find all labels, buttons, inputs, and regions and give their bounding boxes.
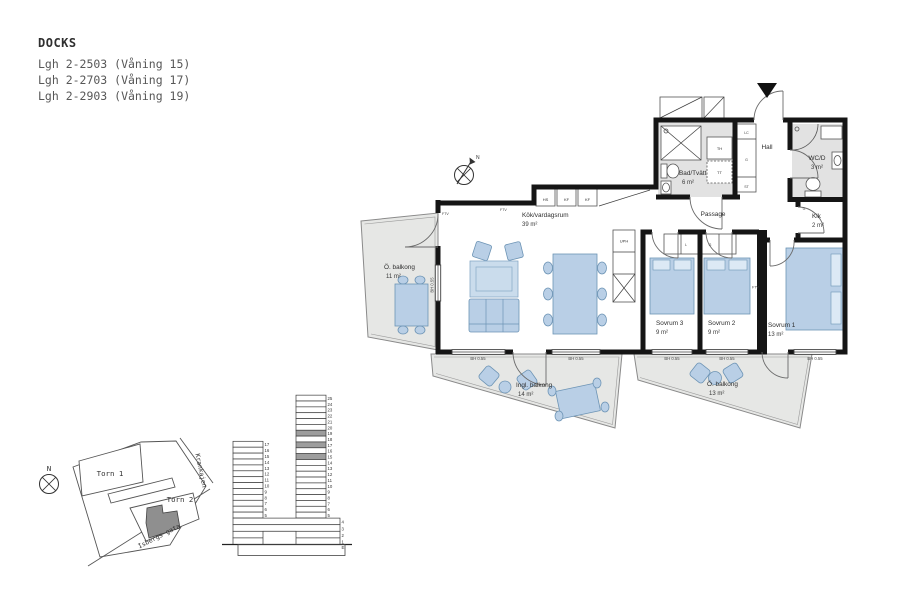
cabinet-label-kf: KF (585, 197, 591, 202)
floor-row-13 (296, 465, 326, 471)
window-height-label: BH 0.55 (470, 356, 486, 361)
shaft-boxes (660, 97, 724, 118)
floor-row-21 (296, 419, 326, 425)
room-area-sovrum1: 13 m² (768, 332, 783, 338)
floor-label-10: 10 (328, 484, 333, 489)
floor-label-17: 17 (265, 442, 270, 447)
floor-row-24 (296, 401, 326, 407)
floor-label-18: 18 (328, 437, 333, 442)
floor-label-17: 17 (328, 443, 333, 448)
room-label-sovrum3: Sovrum 3 (656, 320, 684, 327)
floor-row-25 (296, 395, 326, 401)
window (706, 350, 748, 355)
window-height-label: BH 0.55 (664, 356, 680, 361)
room-label-passage: Passage (701, 211, 726, 218)
balcony-table (395, 284, 428, 326)
dining-table-group (544, 254, 607, 334)
ftv-label: FTV (442, 212, 449, 216)
ftv-label: FTV (500, 208, 507, 212)
site-north-label: N (47, 464, 51, 473)
floor-row-8 (233, 494, 263, 500)
room-label-sovrum2: Sovrum 2 (708, 320, 736, 327)
floor-label-25: 25 (328, 396, 333, 401)
left-tower: 171615141312111098765 (233, 441, 270, 518)
floor-label-4: 4 (342, 520, 345, 525)
floor-row-12 (296, 471, 326, 477)
north-arrow-icon: N (455, 155, 481, 185)
floor-row-18 (296, 436, 326, 442)
floor-label-11: 11 (265, 478, 270, 483)
floor-row-14 (296, 460, 326, 466)
floor-row-17 (233, 441, 263, 447)
sovrum2-closet (702, 234, 736, 254)
floor-row-9 (233, 489, 263, 495)
floor-row-16 (296, 448, 326, 454)
toilet-bath (661, 164, 679, 178)
floor-row-11 (233, 477, 263, 483)
floorplan-drawing: N HS KF KF FTV FTV FTV UPH Kök/vardagsru… (0, 0, 900, 600)
floor-label-9: 9 (265, 489, 268, 494)
room-area-sovrum2: 9 m² (708, 330, 720, 336)
closet-label-l: L (685, 243, 687, 247)
window-height-label: BH 0.55 (568, 356, 584, 361)
window (435, 265, 440, 301)
floor-label-15: 15 (265, 454, 270, 459)
window (794, 350, 836, 355)
floor-label-2: 2 (342, 533, 345, 538)
entry-arrow-icon (757, 83, 777, 98)
floor-label-10: 10 (265, 484, 270, 489)
floor-label-5: 5 (328, 513, 331, 518)
floor-label-16: 16 (328, 449, 333, 454)
bed-sovrum2 (704, 258, 750, 314)
closet-label-g: G (709, 243, 712, 247)
bed-sovrum3 (650, 258, 694, 314)
cabinet-label-kf: KF (564, 197, 570, 202)
floor-row-6 (233, 506, 263, 512)
floor-label-13: 13 (265, 466, 270, 471)
toilet-wcd (805, 178, 821, 198)
sink-wcd (832, 152, 843, 169)
floor-label-19: 19 (328, 431, 333, 436)
room-label-klk: Klk (812, 213, 822, 220)
room-area-sovrum3: 9 m² (656, 330, 668, 336)
dryer-label: TH (717, 146, 722, 151)
closet-label-g: G (745, 158, 748, 162)
chair (598, 314, 607, 326)
floor-label-5: 5 (265, 513, 268, 518)
room-label-bath: Bad/Tvätt (679, 170, 707, 177)
room-label-livingroom: Kök/vardagsrum (522, 212, 569, 219)
floor-row-23 (296, 407, 326, 413)
ground-floor-label: E (342, 545, 345, 550)
sink-bath (661, 181, 671, 194)
window-height-label: BH 0.55 (719, 356, 735, 361)
wcd-cabinet (821, 126, 842, 139)
room-area-balcony-east: 13 m² (709, 391, 724, 397)
right-tower: 2524232221201918171615141312111098765 (296, 395, 333, 518)
floor-row-5 (233, 512, 263, 518)
floor-label-20: 20 (328, 425, 333, 430)
chair (598, 288, 607, 300)
floor-row-13 (233, 465, 263, 471)
floor-label-8: 8 (328, 495, 331, 500)
washer-label: TT (717, 170, 722, 175)
floor-label-24: 24 (328, 402, 333, 407)
floor-row-19 (296, 430, 326, 436)
floor-row-6 (296, 506, 326, 512)
floor-row-9 (296, 489, 326, 495)
room-area-balcony-glazed: 14 m² (518, 392, 533, 398)
shower-bath (661, 126, 701, 160)
room-label-balcony-glazed: Ingl. balkong (516, 382, 553, 389)
closet-label-g: G (803, 207, 806, 211)
sovrum3-closet (664, 234, 698, 254)
side-table (499, 381, 511, 393)
floor-label-8: 8 (265, 495, 268, 500)
north-label: N (476, 155, 480, 161)
floor-label-23: 23 (328, 408, 333, 413)
floor-row-8 (296, 495, 326, 501)
ftv-label: FTV (752, 286, 759, 290)
chair (544, 262, 553, 274)
building-label-torn2: Torn 2 (167, 495, 194, 504)
floor-label-12: 12 (328, 472, 333, 477)
room-area-wcd: 3 m² (811, 165, 823, 171)
podium-notch (263, 531, 296, 544)
floor-label-9: 9 (328, 490, 331, 495)
floor-row-16 (233, 447, 263, 453)
building-label-torn1: Torn 1 (97, 469, 124, 478)
uph-label: UPH (620, 239, 629, 244)
floor-row-7 (233, 500, 263, 506)
room-label-wcd: WC/D (808, 155, 825, 162)
bed-sovrum1 (786, 248, 843, 330)
window (652, 350, 692, 355)
elevation-diagram: 171615141312111098765 252423222120191817… (222, 395, 352, 555)
dining-table (553, 254, 597, 334)
floor-label-1: 1 (342, 540, 345, 545)
coffee-table (470, 261, 518, 297)
floor-row-12 (233, 471, 263, 477)
floor-row-17 (296, 442, 326, 448)
window-height-label: BH 0.55 (430, 277, 435, 293)
floor-row-20 (296, 424, 326, 430)
chair (544, 314, 553, 326)
floor-row-15 (296, 454, 326, 460)
chair (544, 288, 553, 300)
room-area-bath: 6 m² (682, 180, 694, 186)
floor-label-6: 6 (265, 507, 268, 512)
floor-row-11 (296, 477, 326, 483)
floor-label-3: 3 (342, 526, 345, 531)
floor-label-16: 16 (265, 448, 270, 453)
room-area-klk: 2 m² (812, 223, 824, 229)
floor-row-15 (233, 453, 263, 459)
room-label-balcony-west: Ö. balkong (384, 263, 415, 271)
basement-outline (238, 545, 345, 556)
floor-label-7: 7 (328, 501, 331, 506)
site-compass-icon: N (40, 464, 59, 494)
sofa (469, 299, 519, 332)
chair (598, 262, 607, 274)
room-label-balcony-east: Ö. balkong (707, 380, 738, 388)
room-label-hall: Hall (761, 144, 772, 151)
site-map: N Torn 1 Torn 2 Krankajen Isbergs gata (40, 438, 214, 566)
room-label-sovrum1: Sovrum 1 (768, 322, 796, 329)
floor-row-14 (233, 459, 263, 465)
floor-row-10 (233, 483, 263, 489)
floor-label-14: 14 (265, 460, 270, 465)
window (452, 350, 505, 355)
window (552, 350, 600, 355)
sofa-group (469, 241, 524, 332)
floor-label-13: 13 (328, 466, 333, 471)
closet-label-lc: LC (744, 131, 749, 135)
floor-label-22: 22 (328, 414, 333, 419)
floor-row-22 (296, 413, 326, 419)
floor-row-7 (296, 500, 326, 506)
room-area-balcony-west: 11 m² (386, 274, 401, 280)
shaft-wall (757, 230, 767, 355)
closet-label-st: ST (744, 185, 749, 189)
room-area-livingroom: 39 m² (522, 222, 537, 228)
cabinet-label-hs: HS (543, 197, 549, 202)
floor-row-3 (233, 525, 340, 532)
floor-row-4 (233, 518, 340, 525)
floor-label-14: 14 (328, 460, 333, 465)
armchair (472, 241, 492, 261)
window-height-label: BH 0.55 (807, 356, 823, 361)
floor-row-5 (296, 512, 326, 518)
floor-label-7: 7 (265, 501, 268, 506)
floor-label-6: 6 (328, 507, 331, 512)
armchair (504, 241, 523, 260)
floor-row-10 (296, 483, 326, 489)
floor-label-21: 21 (328, 419, 333, 424)
floor-label-11: 11 (328, 478, 333, 483)
floor-label-12: 12 (265, 472, 270, 477)
balcony-west-furniture (395, 276, 428, 334)
floor-label-15: 15 (328, 455, 333, 460)
